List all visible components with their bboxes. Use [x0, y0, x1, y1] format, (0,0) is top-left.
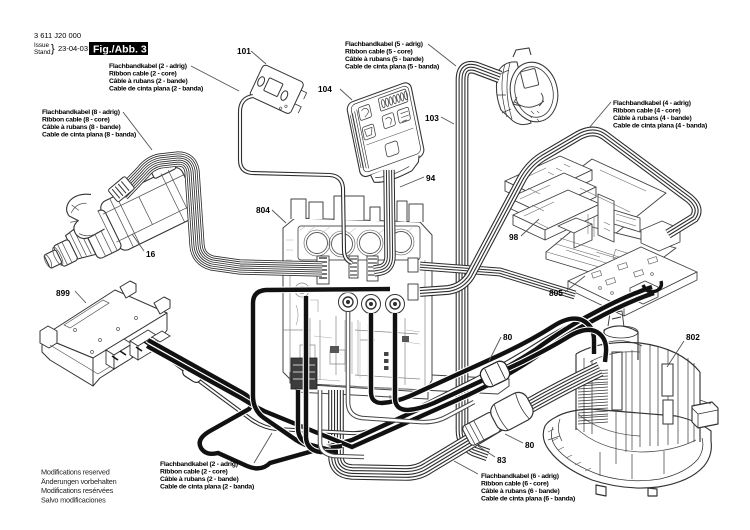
svg-text:Câble à rubans (4 - bande): Câble à rubans (4 - bande)	[613, 115, 691, 122]
svg-text:Ribbon cable (2 - core): Ribbon cable (2 - core)	[160, 469, 228, 476]
svg-text:Ribbon cable (5 - core): Ribbon cable (5 - core)	[345, 49, 413, 56]
svg-text:Ribbon cable (8 - core): Ribbon cable (8 - core)	[42, 117, 110, 124]
svg-text:899: 899	[56, 288, 70, 298]
svg-text:16: 16	[146, 249, 156, 259]
svg-text:80: 80	[503, 332, 513, 342]
svg-text:3 611 J20 000: 3 611 J20 000	[34, 31, 81, 40]
svg-text:Änderungen vorbehalten: Änderungen vorbehalten	[41, 477, 117, 486]
svg-text:Cable de cinta plana (4 - band: Cable de cinta plana (4 - banda)	[613, 123, 707, 130]
svg-text:Câble à rubans (2 - bande): Câble à rubans (2 - bande)	[109, 78, 187, 85]
svg-text:Cable de cinta plana (6 - band: Cable de cinta plana (6 - banda)	[481, 496, 575, 503]
svg-text:Ribbon cable (4 - core): Ribbon cable (4 - core)	[613, 108, 681, 115]
svg-text:Ribbon cable (6 - core): Ribbon cable (6 - core)	[481, 481, 549, 488]
svg-text:83: 83	[497, 455, 507, 465]
svg-text:94: 94	[426, 173, 436, 183]
svg-text:Câble à rubans (2 - bande): Câble à rubans (2 - bande)	[160, 476, 238, 483]
svg-text:Cable de cinta plana (5 - band: Cable de cinta plana (5 - banda)	[345, 64, 439, 71]
svg-text:802: 802	[686, 332, 700, 342]
svg-text:Stand: Stand	[34, 49, 51, 56]
svg-text:Fig./Abb. 3: Fig./Abb. 3	[93, 44, 147, 56]
svg-text:80: 80	[525, 440, 535, 450]
svg-text:Câble à rubans (5 - bande): Câble à rubans (5 - bande)	[345, 56, 423, 63]
svg-text:98: 98	[509, 232, 519, 242]
svg-text:Flachbandkabel (4 - adrig): Flachbandkabel (4 - adrig)	[613, 100, 691, 107]
svg-text:Ribbon cable (2 - core): Ribbon cable (2 - core)	[109, 71, 177, 78]
svg-text:804: 804	[256, 205, 270, 215]
svg-text:Flachbandkabel (2 - adrig): Flachbandkabel (2 - adrig)	[109, 63, 187, 70]
svg-text:23-04-03: 23-04-03	[58, 44, 88, 53]
svg-text:Câble à rubans (8 - bande): Câble à rubans (8 - bande)	[42, 124, 120, 131]
svg-text:Modifications reserved: Modifications reserved	[41, 468, 110, 477]
svg-text:Flachbandkabel (5 - adrig): Flachbandkabel (5 - adrig)	[345, 41, 423, 48]
svg-text:101: 101	[237, 46, 251, 56]
svg-text:Flachbandkabel (2 - adrig): Flachbandkabel (2 - adrig)	[160, 461, 238, 468]
svg-text:Flachbandkabel (8 - adrig): Flachbandkabel (8 - adrig)	[42, 109, 120, 116]
svg-text:Câble à rubans (6 - bande): Câble à rubans (6 - bande)	[481, 488, 559, 495]
svg-text:103: 103	[425, 113, 439, 123]
svg-text:104: 104	[318, 84, 332, 94]
svg-text:805: 805	[549, 288, 563, 298]
svg-text:Modifications resérvées: Modifications resérvées	[41, 486, 114, 495]
svg-text:Salvo modificaciones: Salvo modificaciones	[41, 495, 106, 504]
svg-text:Flachbandkabel (6 - adrig): Flachbandkabel (6 - adrig)	[481, 473, 559, 480]
svg-text:Cable de cinta plana (8 - band: Cable de cinta plana (8 - banda)	[42, 132, 136, 139]
svg-text:Cable de cinta plana (2 - band: Cable de cinta plana (2 - banda)	[160, 484, 254, 491]
svg-text:}: }	[51, 43, 55, 55]
svg-text:Cable de cinta plana (2 - band: Cable de cinta plana (2 - banda)	[109, 86, 203, 93]
svg-text:Issue: Issue	[34, 42, 50, 49]
